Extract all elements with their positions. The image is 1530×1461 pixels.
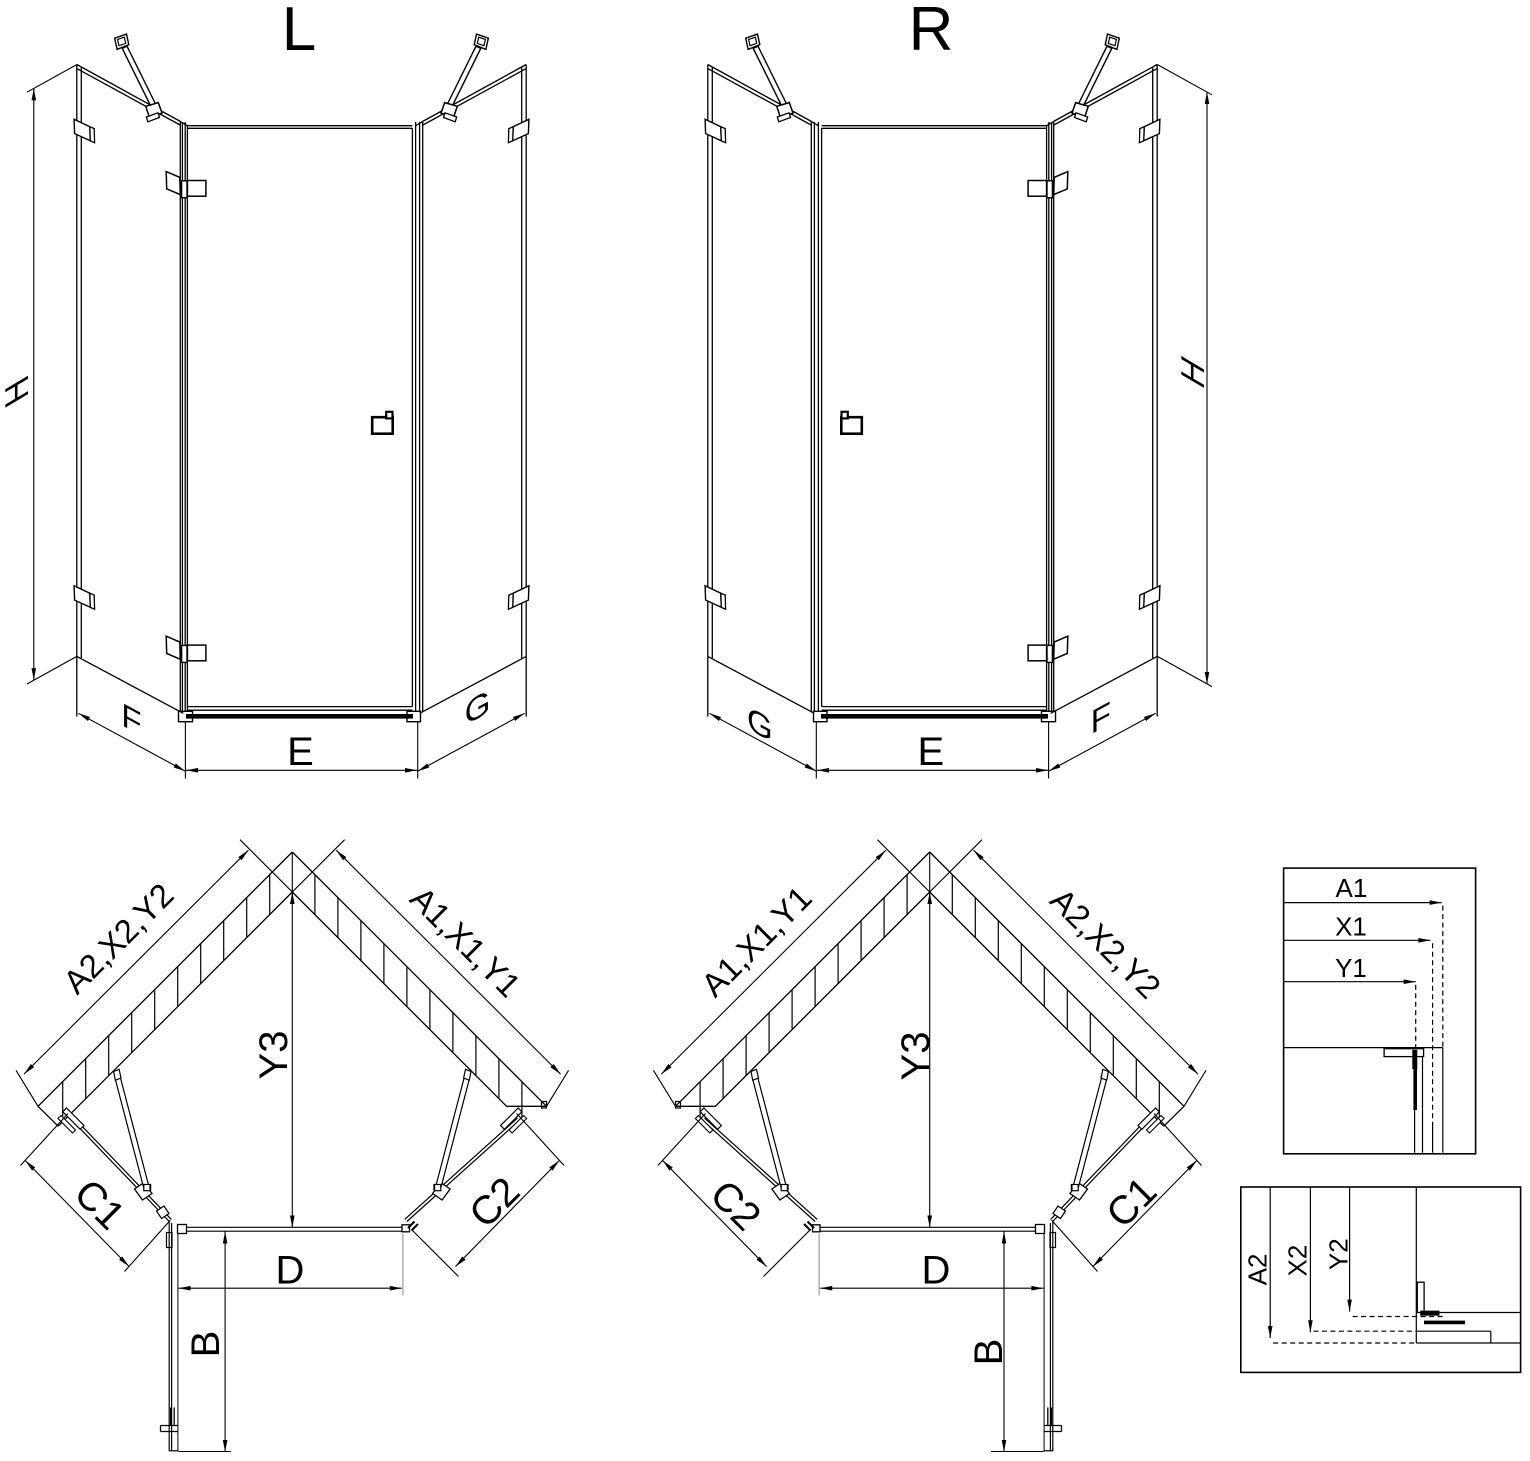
svg-text:A1: A1 xyxy=(1335,873,1367,903)
svg-text:X2: X2 xyxy=(1283,1245,1313,1277)
svg-text:A2: A2 xyxy=(1243,1253,1273,1285)
svg-text:R: R xyxy=(909,0,954,64)
svg-text:E: E xyxy=(287,730,314,774)
svg-text:Y3: Y3 xyxy=(252,1031,296,1080)
svg-text:Y2: Y2 xyxy=(1324,1238,1354,1270)
svg-text:Y1: Y1 xyxy=(1335,953,1367,983)
svg-text:D: D xyxy=(922,1249,951,1293)
svg-text:X1: X1 xyxy=(1335,912,1367,942)
svg-text:B: B xyxy=(184,1331,228,1358)
svg-text:D: D xyxy=(276,1249,305,1293)
svg-text:B: B xyxy=(967,1339,1011,1366)
svg-text:E: E xyxy=(918,730,945,774)
svg-text:L: L xyxy=(282,0,316,64)
svg-text:Y3: Y3 xyxy=(894,1032,938,1081)
